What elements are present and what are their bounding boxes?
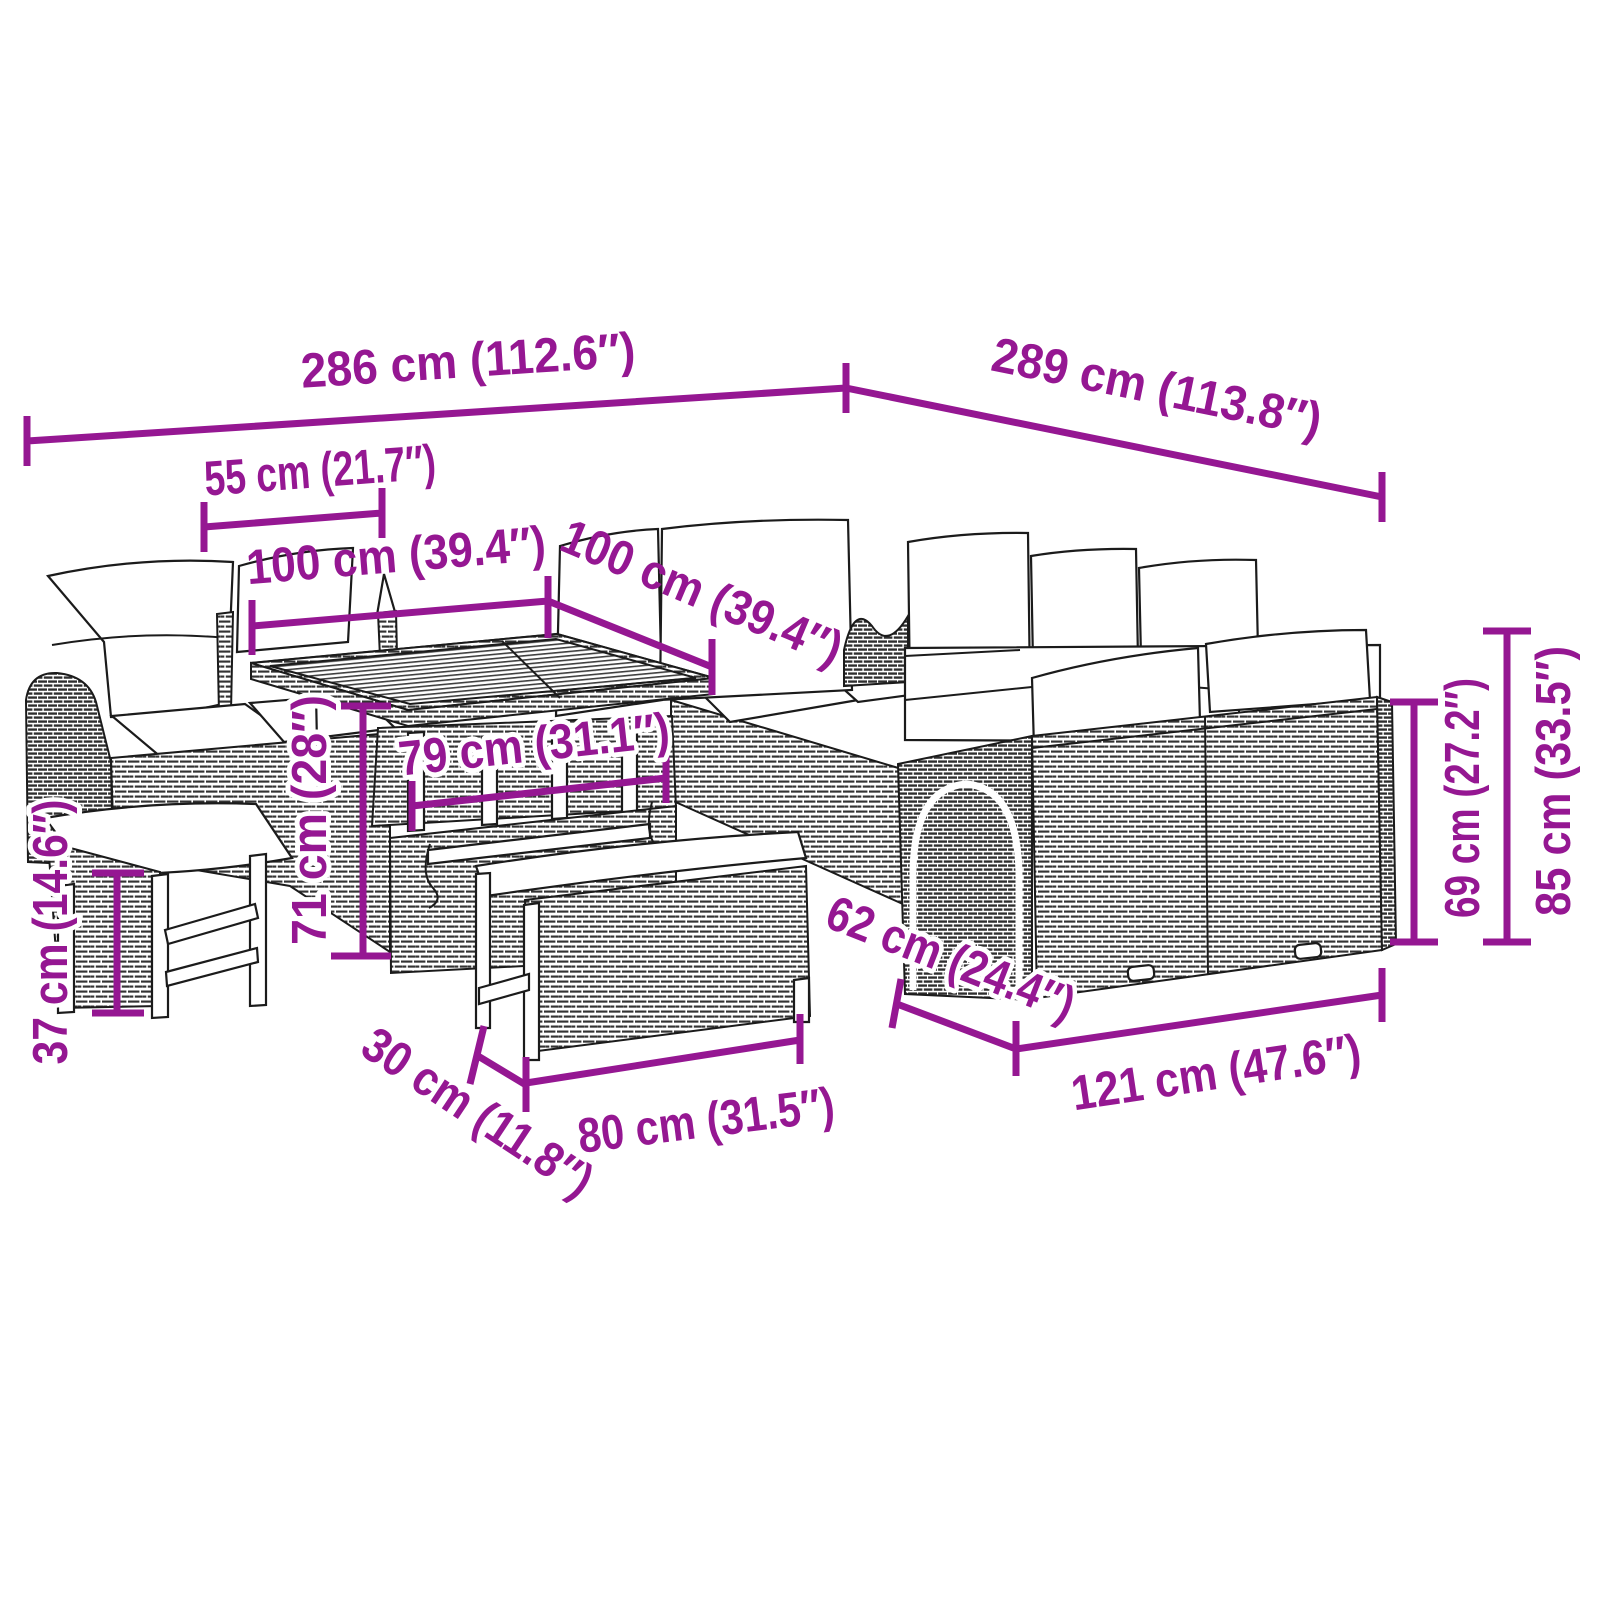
svg-text:100 cm (39.4″): 100 cm (39.4″) bbox=[244, 517, 547, 595]
svg-text:121 cm (47.6″): 121 cm (47.6″) bbox=[1068, 1025, 1365, 1122]
svg-text:55 cm (21.7″): 55 cm (21.7″) bbox=[202, 435, 437, 506]
svg-text:80 cm (31.5″): 80 cm (31.5″) bbox=[575, 1078, 838, 1164]
svg-text:69 cm (27.2″): 69 cm (27.2″) bbox=[1436, 678, 1490, 918]
svg-text:71 cm (28″): 71 cm (28″) bbox=[283, 695, 337, 945]
svg-text:85 cm (33.5″): 85 cm (33.5″) bbox=[1527, 646, 1581, 916]
svg-text:286 cm (112.6″): 286 cm (112.6″) bbox=[299, 323, 637, 399]
svg-text:37 cm (14.6″): 37 cm (14.6″) bbox=[24, 800, 78, 1065]
